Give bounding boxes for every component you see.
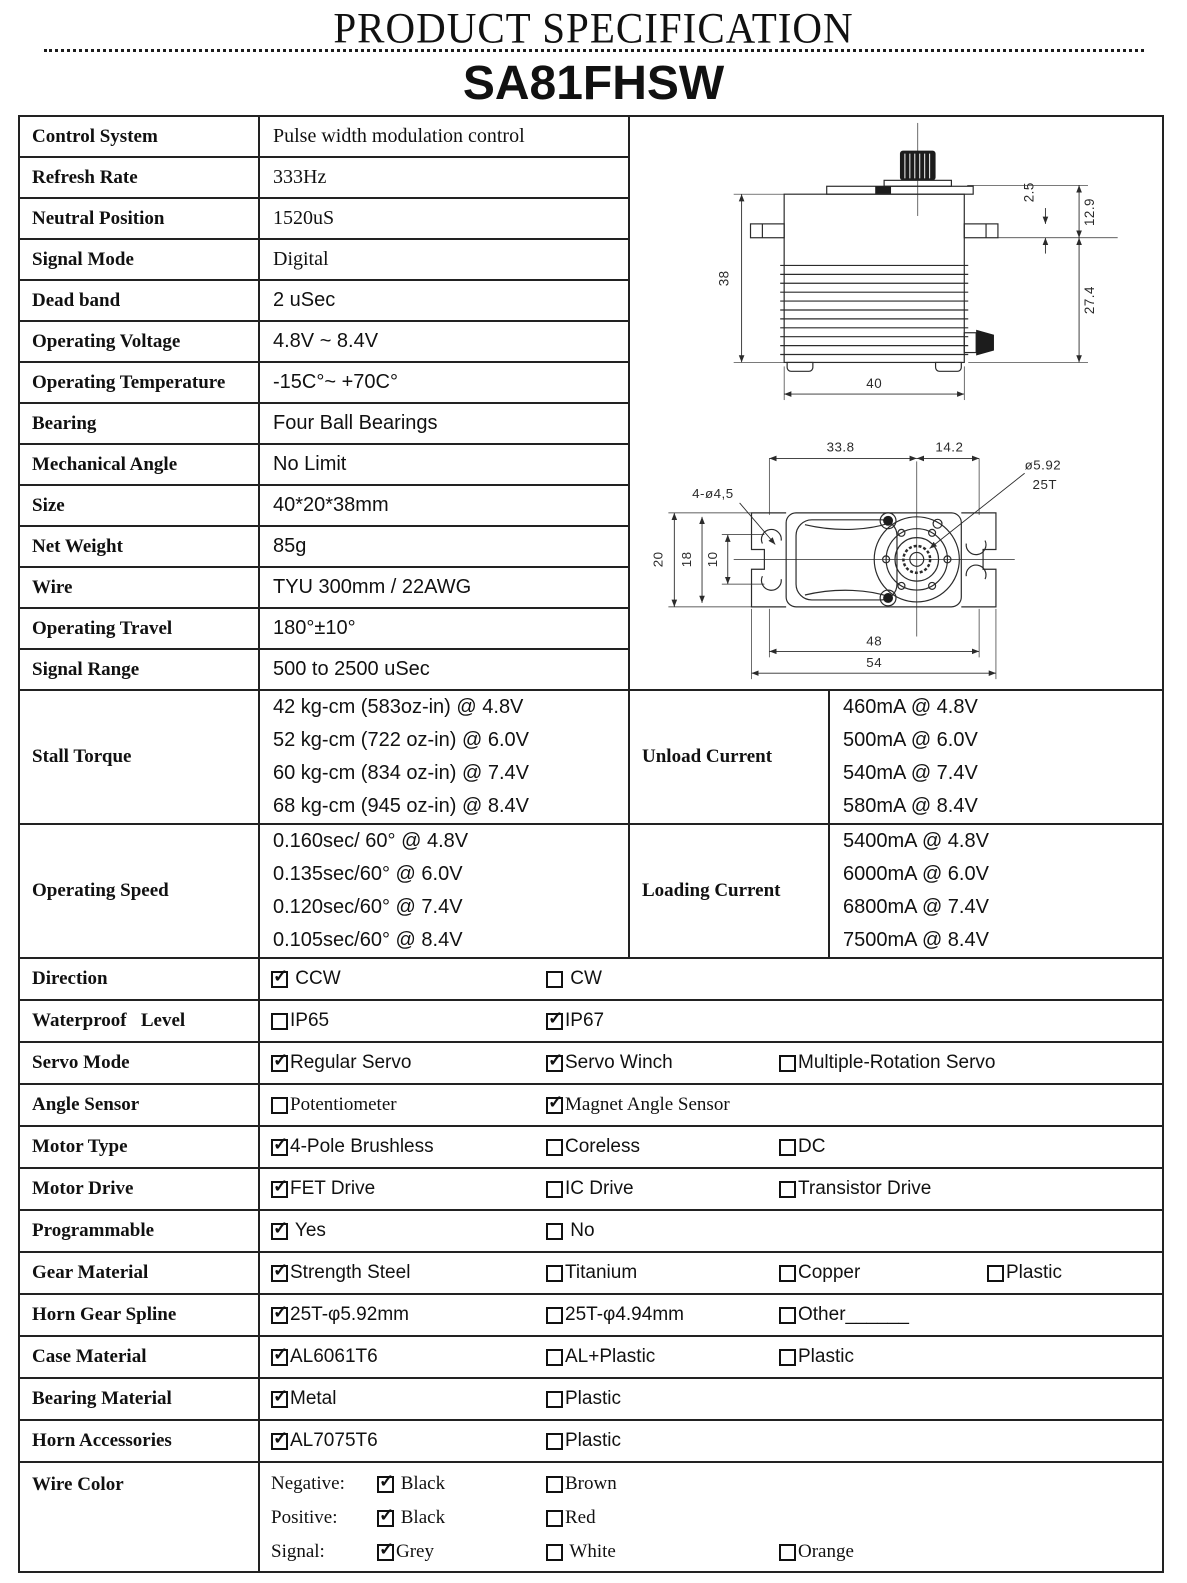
spec-value: 1520uS <box>259 198 629 239</box>
option-label: IP67 <box>565 1010 604 1032</box>
option-cell: CCW CW <box>259 958 1163 1000</box>
option-label: IP65 <box>290 1010 329 1032</box>
spec-label: Operating Travel <box>19 608 259 649</box>
checkbox-icon <box>377 1476 394 1493</box>
dim-span54-label: 54 <box>866 655 882 670</box>
option-label: Potentiometer <box>290 1094 397 1116</box>
option-label: IC Drive <box>565 1178 634 1200</box>
wire-name: Positive: <box>271 1507 377 1529</box>
option-label: Other______ <box>798 1304 909 1326</box>
spec-label: Operating Temperature <box>19 362 259 403</box>
option-cell: Yes No <box>259 1210 1163 1252</box>
checkbox-icon <box>546 1013 563 1030</box>
spec-option: Plastic <box>546 1388 779 1410</box>
spec-label: Operating Voltage <box>19 321 259 362</box>
spec-label: Mechanical Angle <box>19 444 259 485</box>
spec-option: CW <box>546 968 779 990</box>
wire-name: Signal: <box>271 1541 377 1563</box>
option-label: 4-Pole Brushless <box>290 1136 434 1158</box>
spec-label: Angle Sensor <box>19 1084 259 1126</box>
value-line: 0.105sec/60° @ 8.4V <box>273 924 628 957</box>
option-cell: FET Drive IC Drive Transistor Drive <box>259 1168 1163 1210</box>
spline-teeth-label: 25T <box>1033 477 1057 492</box>
option-cell: Metal Plastic <box>259 1378 1163 1420</box>
spec-value: Pulse width modulation control <box>259 116 629 157</box>
dim-right-label: 14.2 <box>935 440 963 455</box>
value-line: 460mA @ 4.8V <box>843 691 1162 724</box>
spec-option: 25T-φ5.92mm <box>271 1304 546 1326</box>
checkbox-icon <box>779 1265 796 1282</box>
table-row: Wire Color Negative: Black Brown Positiv… <box>19 1462 1163 1572</box>
option-label: Orange <box>798 1541 854 1563</box>
spec-value-list: 42 kg-cm (583oz-in) @ 4.8V 52 kg-cm (722… <box>259 690 629 824</box>
option-cell: AL7075T6 Plastic <box>259 1420 1163 1462</box>
value-line: 580mA @ 8.4V <box>843 790 1162 823</box>
spec-value: TYU 300mm / 22AWG <box>259 567 629 608</box>
dim-left-label: 33.8 <box>827 440 855 455</box>
spline-diameter-label: ø5.92 <box>1025 457 1062 472</box>
spec-value: 500 to 2500 uSec <box>259 649 629 690</box>
checkbox-icon <box>546 1055 563 1072</box>
spec-option: Transistor Drive <box>779 1178 987 1200</box>
side-view-dimensions: 38 2.5 12.9 27.4 40 <box>717 182 1118 400</box>
checkbox-icon <box>779 1349 796 1366</box>
side-view-drawing: 38 2.5 12.9 27.4 40 <box>630 117 1160 404</box>
table-row: Waterproof Level IP65 IP67 <box>19 1000 1163 1042</box>
option-label: Transistor Drive <box>798 1178 931 1200</box>
value-line: 42 kg-cm (583oz-in) @ 4.8V <box>273 691 628 724</box>
value-line: 500mA @ 6.0V <box>843 724 1162 757</box>
spec-label: Wire <box>19 567 259 608</box>
option-label: CW <box>565 968 602 990</box>
option-label: Red <box>565 1507 596 1529</box>
table-row: Horn Accessories AL7075T6 Plastic <box>19 1420 1163 1462</box>
spec-label: Waterproof Level <box>19 1000 259 1042</box>
spec-option: Coreless <box>546 1136 779 1158</box>
mount-holes-label: 4-ø4,5 <box>692 486 734 501</box>
spec-label: Bearing Material <box>19 1378 259 1420</box>
spec-value: 4.8V ~ 8.4V <box>259 321 629 362</box>
checkbox-icon <box>779 1307 796 1324</box>
wire-name: Negative: <box>271 1473 377 1495</box>
spec-label: Servo Mode <box>19 1042 259 1084</box>
option-label: Grey <box>396 1541 434 1563</box>
spec-label: Wire Color <box>19 1462 259 1572</box>
checkbox-icon <box>779 1181 796 1198</box>
spec-value: Four Ball Bearings <box>259 403 629 444</box>
spec-option: DC <box>779 1136 987 1158</box>
table-row: Motor Drive FET Drive IC Drive Transisto… <box>19 1168 1163 1210</box>
checkbox-icon <box>271 1265 288 1282</box>
spec-value: No Limit <box>259 444 629 485</box>
checkbox-icon <box>271 971 288 988</box>
spec-option: Orange <box>779 1541 1162 1563</box>
value-line: 0.160sec/ 60° @ 4.8V <box>273 825 628 858</box>
table-row: Programmable Yes No <box>19 1210 1163 1252</box>
spec-option: IC Drive <box>546 1178 779 1200</box>
wire-color-cell: Negative: Black Brown Positive: Black Re… <box>259 1462 1163 1572</box>
option-label: Strength Steel <box>290 1262 410 1284</box>
checkbox-icon <box>546 1307 563 1324</box>
spec-label: Motor Drive <box>19 1168 259 1210</box>
spec-option: 4-Pole Brushless <box>271 1136 546 1158</box>
spec-option: IP65 <box>271 1010 546 1032</box>
option-label: Plastic <box>798 1346 854 1368</box>
dim-w20-label: 20 <box>650 551 665 567</box>
option-cell: 25T-φ5.92mm 25T-φ4.94mm Other______ <box>259 1294 1163 1336</box>
spec-option: AL+Plastic <box>546 1346 779 1368</box>
option-label: 25T-φ4.94mm <box>565 1304 684 1326</box>
option-label: Plastic <box>565 1388 621 1410</box>
spec-option: Titanium <box>546 1262 779 1284</box>
checkbox-icon <box>546 1476 563 1493</box>
option-label: AL7075T6 <box>290 1430 378 1452</box>
checkbox-icon <box>271 1097 288 1114</box>
dim-span48-label: 48 <box>866 633 882 648</box>
technical-drawings: 38 2.5 12.9 27.4 40 <box>629 116 1163 690</box>
spec-option: Red <box>546 1507 779 1529</box>
option-label: 25T-φ5.92mm <box>290 1304 409 1326</box>
spec-value: -15C°~ +70C° <box>259 362 629 403</box>
value-line: 6800mA @ 7.4V <box>843 891 1162 924</box>
dim-width-label: 40 <box>866 376 882 391</box>
option-label: AL+Plastic <box>565 1346 655 1368</box>
spec-option: Black <box>377 1507 546 1529</box>
product-spec-page: PRODUCT SPECIFICATION SA81FHSW Control S… <box>0 0 1187 1583</box>
spec-option: Potentiometer <box>271 1094 546 1116</box>
spec-option: Plastic <box>546 1430 779 1452</box>
checkbox-icon <box>546 1433 563 1450</box>
spec-label: Refresh Rate <box>19 157 259 198</box>
spec-option: Grey <box>377 1541 546 1563</box>
value-line: 60 kg-cm (834 oz-in) @ 7.4V <box>273 757 628 790</box>
wire-line: Signal: Grey White Orange <box>271 1535 1162 1569</box>
option-cell: Potentiometer Magnet Angle Sensor <box>259 1084 1163 1126</box>
spec-value: 333Hz <box>259 157 629 198</box>
spec-option: AL7075T6 <box>271 1430 546 1452</box>
table-row: Control System Pulse width modulation co… <box>19 116 1163 157</box>
spec-option: Servo Winch <box>546 1052 779 1074</box>
option-label: Black <box>396 1507 445 1529</box>
spec-label: Programmable <box>19 1210 259 1252</box>
spec-option: AL6061T6 <box>271 1346 546 1368</box>
spec-option: Plastic <box>987 1262 1162 1284</box>
value-line: 7500mA @ 8.4V <box>843 924 1162 957</box>
spec-option: 25T-φ4.94mm <box>546 1304 779 1326</box>
option-label: Multiple-Rotation Servo <box>798 1052 995 1074</box>
spec-option: Copper <box>779 1262 987 1284</box>
value-line: 6000mA @ 6.0V <box>843 858 1162 891</box>
spec-option: Metal <box>271 1388 546 1410</box>
dim-height-label: 38 <box>717 270 732 286</box>
checkbox-icon <box>546 1181 563 1198</box>
dim-cap-label: 2.5 <box>1022 182 1037 202</box>
checkbox-icon <box>377 1510 394 1527</box>
option-label: AL6061T6 <box>290 1346 378 1368</box>
spec-option: Other______ <box>779 1304 987 1326</box>
checkbox-icon <box>271 1013 288 1030</box>
wire-line: Positive: Black Red <box>271 1501 1162 1535</box>
dim-upper-label: 12.9 <box>1082 198 1097 226</box>
title-underline <box>44 49 1144 52</box>
checkbox-icon <box>546 1391 563 1408</box>
value-line: 68 kg-cm (945 oz-in) @ 8.4V <box>273 790 628 823</box>
spec-value-list: 5400mA @ 4.8V 6000mA @ 6.0V 6800mA @ 7.4… <box>829 824 1163 958</box>
option-label: No <box>565 1220 595 1242</box>
table-row: Horn Gear Spline 25T-φ5.92mm 25T-φ4.94mm… <box>19 1294 1163 1336</box>
option-cell: Strength Steel Titanium Copper Plastic <box>259 1252 1163 1294</box>
spec-option: Brown <box>546 1473 779 1495</box>
checkbox-icon <box>271 1349 288 1366</box>
table-row: Servo Mode Regular Servo Servo Winch Mul… <box>19 1042 1163 1084</box>
option-label: Titanium <box>565 1262 637 1284</box>
option-label: Coreless <box>565 1136 640 1158</box>
spec-label: Motor Type <box>19 1126 259 1168</box>
option-label: White <box>565 1541 616 1563</box>
spec-label: Dead band <box>19 280 259 321</box>
checkbox-icon <box>779 1055 796 1072</box>
dim-w10-label: 10 <box>705 551 720 567</box>
checkbox-icon <box>546 1349 563 1366</box>
checkbox-icon <box>271 1307 288 1324</box>
value-line: 540mA @ 7.4V <box>843 757 1162 790</box>
dim-lower-label: 27.4 <box>1082 286 1097 314</box>
checkbox-icon <box>271 1055 288 1072</box>
spec-label: Horn Accessories <box>19 1420 259 1462</box>
spec-value: 40*20*38mm <box>259 485 629 526</box>
spec-option: FET Drive <box>271 1178 546 1200</box>
option-label: Regular Servo <box>290 1052 411 1074</box>
spec-label: Unload Current <box>629 690 829 824</box>
option-label: Black <box>396 1473 445 1495</box>
spec-option: Multiple-Rotation Servo <box>779 1052 987 1074</box>
top-view-drawing: 33.8 14.2 ø5.92 25T 4-ø4,5 20 18 <box>630 404 1160 689</box>
spec-value: Digital <box>259 239 629 280</box>
spec-value-list: 460mA @ 4.8V 500mA @ 6.0V 540mA @ 7.4V 5… <box>829 690 1163 824</box>
value-line: 0.120sec/60° @ 7.4V <box>273 891 628 924</box>
spec-label: Stall Torque <box>19 690 259 824</box>
spec-label: Signal Range <box>19 649 259 690</box>
table-row: Operating Speed 0.160sec/ 60° @ 4.8V 0.1… <box>19 824 1163 958</box>
option-cell: AL6061T6 AL+Plastic Plastic <box>259 1336 1163 1378</box>
checkbox-icon <box>546 1510 563 1527</box>
spec-value: 2 uSec <box>259 280 629 321</box>
spec-option: Regular Servo <box>271 1052 546 1074</box>
table-row: Gear Material Strength Steel Titanium Co… <box>19 1252 1163 1294</box>
table-row: Case Material AL6061T6 AL+Plastic Plasti… <box>19 1336 1163 1378</box>
table-row: Direction CCW CW <box>19 958 1163 1000</box>
table-row: Motor Type 4-Pole Brushless Coreless DC <box>19 1126 1163 1168</box>
spec-option: CCW <box>271 968 546 990</box>
option-label: Plastic <box>565 1430 621 1452</box>
checkbox-icon <box>546 1223 563 1240</box>
spec-label: Size <box>19 485 259 526</box>
spec-label: Bearing <box>19 403 259 444</box>
table-row: Bearing Material Metal Plastic <box>19 1378 1163 1420</box>
spec-label: Gear Material <box>19 1252 259 1294</box>
servo-side-view <box>751 123 998 371</box>
checkbox-icon <box>271 1139 288 1156</box>
spec-option: Strength Steel <box>271 1262 546 1284</box>
option-label: Plastic <box>1006 1262 1062 1284</box>
option-label: Yes <box>290 1220 326 1242</box>
checkbox-icon <box>779 1139 796 1156</box>
checkbox-icon <box>271 1181 288 1198</box>
spec-label: Loading Current <box>629 824 829 958</box>
spec-label: Net Weight <box>19 526 259 567</box>
checkbox-icon <box>779 1544 796 1561</box>
checkbox-icon <box>546 1265 563 1282</box>
option-cell: IP65 IP67 <box>259 1000 1163 1042</box>
spec-label: Operating Speed <box>19 824 259 958</box>
spec-option: IP67 <box>546 1010 779 1032</box>
page-title: PRODUCT SPECIFICATION <box>0 3 1187 53</box>
spec-label: Case Material <box>19 1336 259 1378</box>
checkbox-icon <box>271 1433 288 1450</box>
spec-option: White <box>546 1541 779 1563</box>
spec-label: Horn Gear Spline <box>19 1294 259 1336</box>
table-row: Stall Torque 42 kg-cm (583oz-in) @ 4.8V … <box>19 690 1163 824</box>
checkbox-icon <box>546 1097 563 1114</box>
spec-value: 180°±10° <box>259 608 629 649</box>
spec-option: Yes <box>271 1220 546 1242</box>
spec-option: Black <box>377 1473 546 1495</box>
spec-label: Direction <box>19 958 259 1000</box>
wire-line: Negative: Black Brown <box>271 1467 1162 1501</box>
spec-value: 85g <box>259 526 629 567</box>
servo-top-view <box>734 461 1015 636</box>
spec-option: No <box>546 1220 779 1242</box>
checkbox-icon <box>271 1223 288 1240</box>
checkbox-icon <box>987 1265 1004 1282</box>
checkbox-icon <box>271 1391 288 1408</box>
value-line: 0.135sec/60° @ 6.0V <box>273 858 628 891</box>
option-label: CCW <box>290 968 341 990</box>
value-line: 5400mA @ 4.8V <box>843 825 1162 858</box>
option-label: Servo Winch <box>565 1052 673 1074</box>
option-cell: Regular Servo Servo Winch Multiple-Rotat… <box>259 1042 1163 1084</box>
option-label: DC <box>798 1136 825 1158</box>
checkbox-icon <box>546 1544 563 1561</box>
spec-table: Control System Pulse width modulation co… <box>18 115 1164 1573</box>
spec-label: Control System <box>19 116 259 157</box>
option-label: Brown <box>565 1473 617 1495</box>
value-line: 52 kg-cm (722 oz-in) @ 6.0V <box>273 724 628 757</box>
option-label: Copper <box>798 1262 860 1284</box>
table-row: Angle Sensor Potentiometer Magnet Angle … <box>19 1084 1163 1126</box>
spec-label: Neutral Position <box>19 198 259 239</box>
spec-value-list: 0.160sec/ 60° @ 4.8V 0.135sec/60° @ 6.0V… <box>259 824 629 958</box>
spec-label: Signal Mode <box>19 239 259 280</box>
checkbox-icon <box>546 971 563 988</box>
option-label: FET Drive <box>290 1178 375 1200</box>
checkbox-icon <box>546 1139 563 1156</box>
option-label: Magnet Angle Sensor <box>565 1094 730 1116</box>
model-name: SA81FHSW <box>0 56 1187 111</box>
spec-option: Magnet Angle Sensor <box>546 1094 779 1116</box>
option-cell: 4-Pole Brushless Coreless DC <box>259 1126 1163 1168</box>
checkbox-icon <box>377 1544 394 1561</box>
spec-option: Plastic <box>779 1346 987 1368</box>
option-label: Metal <box>290 1388 336 1410</box>
dim-w18-label: 18 <box>679 551 694 567</box>
